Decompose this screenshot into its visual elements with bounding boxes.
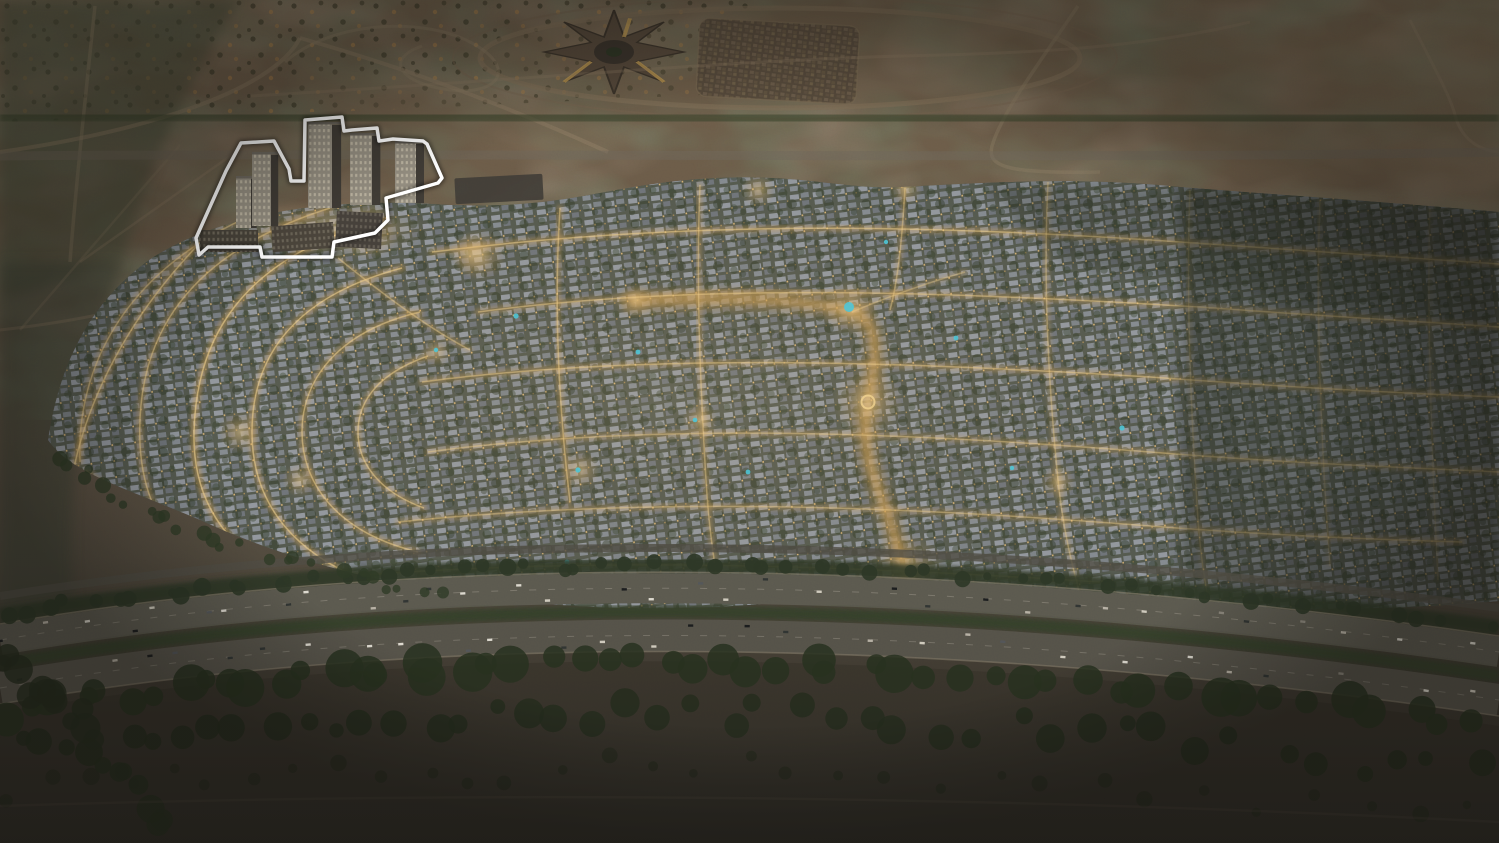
film-grain bbox=[0, 0, 1499, 843]
scene-svg bbox=[0, 0, 1499, 843]
aerial-render bbox=[0, 0, 1499, 843]
